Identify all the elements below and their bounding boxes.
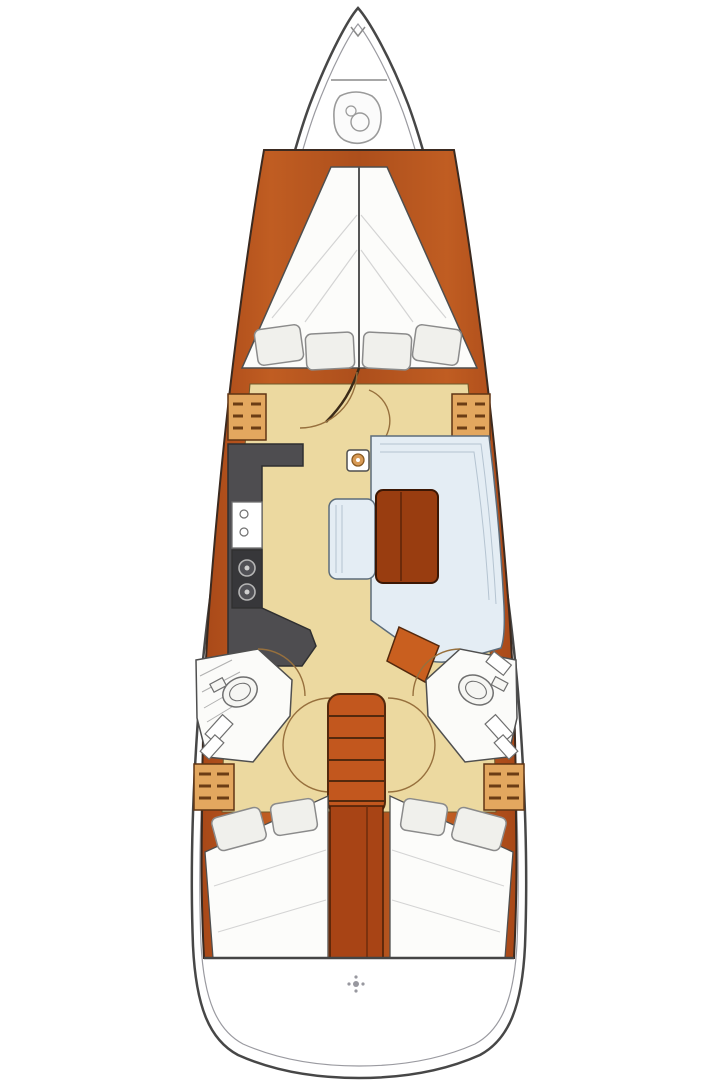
stove-burner-dot bbox=[245, 566, 250, 571]
windlass-icon bbox=[334, 92, 381, 143]
pillow bbox=[254, 324, 305, 366]
boat-floorplan-page bbox=[0, 0, 719, 1080]
companionway-steps bbox=[328, 694, 385, 814]
companionway bbox=[328, 694, 385, 958]
mast-center bbox=[356, 458, 360, 462]
transom-mark-dot bbox=[347, 982, 350, 985]
pillow bbox=[305, 332, 355, 370]
pillow bbox=[412, 324, 463, 366]
windlass-body bbox=[334, 92, 381, 143]
pillow bbox=[362, 332, 412, 370]
galley-sink bbox=[232, 502, 262, 548]
engine-compartment bbox=[330, 806, 383, 958]
transom-mark-center bbox=[353, 981, 359, 987]
transom-mark-dot bbox=[354, 989, 357, 992]
transom-mark-dot bbox=[354, 975, 357, 978]
saloon-table bbox=[376, 490, 438, 583]
mast-step bbox=[347, 450, 369, 471]
pillow bbox=[400, 798, 448, 836]
pillow bbox=[270, 798, 318, 836]
transom-mark-dot bbox=[361, 982, 364, 985]
stove-burner-dot bbox=[245, 590, 250, 595]
boat-floorplan bbox=[0, 0, 719, 1080]
